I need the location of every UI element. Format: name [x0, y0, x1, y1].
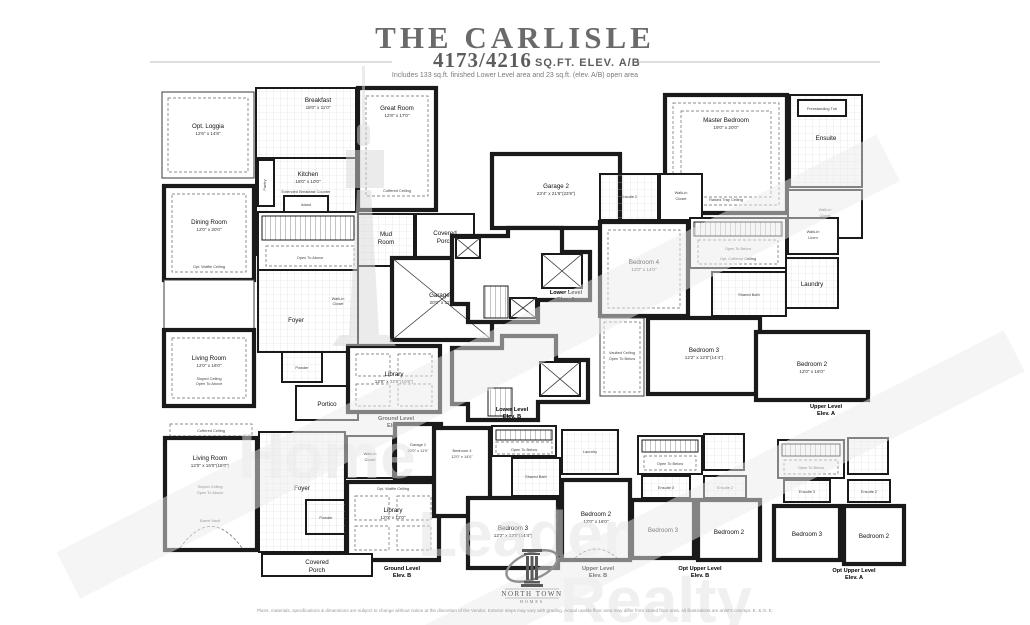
dims-bed2-a: 12'0" x 16'0" — [799, 369, 825, 374]
label-bed4: Bedroom 4 — [629, 259, 660, 266]
label-powder-a: Powder — [295, 365, 309, 370]
floorplan-canvas: THE CARLISLE 4173/4216 SQ.FT. ELEV. A/B … — [0, 0, 1030, 625]
dims-bed3-b: 12'2" x 12'0"(14'4") — [494, 533, 533, 538]
label-bed3-a: Bedroom 3 — [689, 347, 720, 354]
dims-opt-loggia: 12'6" x 14'8" — [195, 131, 221, 136]
label-wic-b-1: Walk-in — [364, 451, 377, 456]
note-sloped-2: Open To Above — [197, 490, 224, 495]
logo-sub: HOMES — [520, 599, 544, 604]
plan-opt-upper-level-b: Open To Below Ensuite 3 Ensuite 2 Bedroo… — [632, 434, 760, 579]
plan-label-opt-b-2: Elev. B — [691, 573, 709, 579]
label-laundry-b: Laundry — [583, 449, 597, 454]
label-island: Island — [301, 202, 311, 207]
bath-opt-b — [704, 434, 744, 470]
note-waffle-ceiling: Opt. Waffle Ceiling — [193, 264, 225, 269]
label-tub: Freestanding Tub — [807, 106, 837, 111]
label-ensuite2-a: Ensuite 2 — [861, 489, 877, 494]
plan-label-upper-a-1: Upper Level — [810, 404, 842, 410]
label-bed4-b: Bedroom 4 — [452, 448, 472, 453]
label-ensuite3-a: Ensuite 3 — [799, 489, 815, 494]
label-wic-master-1: Walk-in — [819, 207, 832, 212]
plan-label-upper-a-2: Elev. A — [817, 411, 835, 417]
label-living-b: Living Room — [193, 455, 227, 462]
hall — [164, 280, 254, 330]
note-living-a-2: Open To Above — [196, 381, 223, 386]
plan-label-ground-b-1: Ground Level — [384, 566, 420, 572]
logo-brand: NORTH TOWN — [501, 590, 562, 598]
label-powder-b: Powder — [319, 515, 333, 520]
label-wil-2: Linen — [808, 235, 818, 240]
label-bed2-a: Bedroom 2 — [797, 361, 828, 368]
plan-label-upper-b-2: Elev. B — [589, 573, 607, 579]
sqft-suffix: SQ.FT. ELEV. A/B — [535, 57, 641, 69]
label-open-below-opt-a: Open To Below — [798, 465, 825, 470]
plan-opt-upper-level-a: Open To Below Ensuite 3 Ensuite 2 Bedroo… — [774, 438, 904, 581]
sqft-note: Includes 133 sq.ft. finished Lower Level… — [392, 72, 638, 79]
room-living-a — [164, 330, 254, 406]
plan-label-opt-b-1: Opt Upper Level — [678, 566, 722, 572]
label-ensuite3-b: Ensuite 3 — [658, 485, 674, 490]
floorplan-sheet: THE CARLISLE 4173/4216 SQ.FT. ELEV. A/B … — [0, 0, 1030, 625]
label-open-below-opt-b: Open To Below — [657, 461, 684, 466]
label-dining: Dining Room — [191, 219, 227, 226]
label-laundry-a: Laundry — [801, 281, 824, 288]
label-pantry: Pantry — [262, 179, 267, 190]
note-sloped-1: Sloped Ceiling — [197, 484, 222, 489]
plan-upper-level-a: Master Bedroom 19'0" x 20'0" Raised Tray… — [600, 95, 868, 417]
plan-lower-level-a: Lower Level Elev. A — [452, 228, 590, 322]
dims-garage1-b: 20'0" x 11'0" — [407, 448, 429, 453]
plan-label-opt-a-2: Elev. A — [845, 575, 863, 581]
label-porch-b-2: Porch — [309, 567, 326, 574]
label-great-room: Great Room — [380, 105, 414, 112]
dims-bed4: 12'0" x 14'0" — [631, 267, 657, 272]
header: THE CARLISLE 4173/4216 SQ.FT. ELEV. A/B … — [150, 20, 880, 79]
note-coffered-b: Coffered Ceiling — [197, 428, 225, 433]
label-mud-1: Mud — [380, 231, 393, 238]
dims-dining: 12'0" x 20'0" — [196, 227, 222, 232]
plan-label-opt-a-1: Opt Upper Level — [832, 568, 876, 574]
label-foyer-a: Foyer — [288, 317, 304, 324]
label-bed2-opt-b: Bedroom 2 — [714, 529, 745, 536]
plan-label-lower-a-1: Lower Level — [550, 290, 583, 296]
note-coffered-ceiling: Coffered Ceiling — [383, 188, 411, 193]
label-garage1-b: Garage 1 — [410, 442, 426, 447]
label-open-below-a: Open To Below — [725, 246, 752, 251]
label-mud-2: Room — [378, 239, 395, 246]
label-ensuite2-b: Ensuite 2 — [717, 485, 733, 490]
note-breakfast-counter: Extended Breakfast Counter — [282, 189, 332, 194]
stair-treads-opt-b — [642, 440, 698, 452]
dims-living-a: 12'0" x 16'0" — [196, 363, 222, 368]
plan-label-upper-b-1: Upper Level — [582, 566, 614, 572]
label-shared-bath-b: Shared Bath — [525, 474, 547, 479]
plan-label-ground-b-2: Elev. B — [393, 573, 411, 579]
dims-kitchen: 18'0" x 10'0" — [295, 179, 321, 184]
label-porch-b-1: Covered — [305, 559, 329, 566]
label-ensuite: Ensuite — [816, 135, 837, 142]
label-living-a: Living Room — [192, 355, 226, 362]
label-bed2-opt-a: Bedroom 2 — [859, 533, 890, 540]
disclaimer-text: Plans, materials, specifications & dimen… — [257, 608, 773, 613]
label-wic-bed4-2: Closet — [675, 196, 687, 201]
label-master: Master Bedroom — [703, 117, 749, 124]
plan-label-lower-b-2: Elev. B — [503, 414, 521, 420]
note-vaulted-2: Open To Below — [609, 356, 636, 361]
stair-treads-upper-b — [496, 430, 552, 440]
plan-lower-level-b: Lower Level Elev. B — [452, 336, 588, 420]
plan-label-ground-a-1: Ground Level — [378, 416, 414, 422]
note-vaulted-1: Vaulted Ceiling — [609, 350, 635, 355]
sqft-value: 4173/4216 — [433, 48, 532, 72]
dims-library-b: 12'0" x 12'0" — [380, 515, 406, 520]
dims-bed2-b: 12'0" x 16'0" — [583, 519, 609, 524]
label-open-to-above: Open To Above — [297, 255, 324, 260]
lower-b-unexcavated — [540, 362, 580, 396]
dims-great-room: 12'8" x 17'0" — [384, 113, 410, 118]
label-breakfast: Breakfast — [305, 97, 331, 104]
label-furniture-niche: Furniture Niche — [554, 507, 559, 534]
label-library-b: Library — [384, 507, 404, 514]
plan-ground-level-b: Coffered Ceiling Living Room 12'0" x 16'… — [165, 424, 441, 579]
bath-opt-a — [848, 438, 888, 474]
note-waffle-library-b: Opt. Waffle Ceiling — [377, 486, 409, 491]
label-library-a: Library — [385, 371, 405, 378]
room-library-b — [347, 482, 439, 560]
label-garage2: Garage 2 — [543, 183, 569, 190]
label-wic-b-2: Closet — [364, 457, 376, 462]
label-wil-1: Walk-in — [807, 229, 820, 234]
dims-breakfast: 18'0" x 11'0" — [306, 105, 331, 110]
label-bed3-opt-b: Bedroom 3 — [648, 527, 679, 534]
dims-bed4-b: 12'0" x 14'0" — [451, 454, 473, 459]
label-foyer-b: Foyer — [294, 485, 310, 492]
label-bed3-opt-a: Bedroom 3 — [792, 531, 823, 538]
stair-treads-upper-a — [694, 222, 782, 236]
note-opt-coffered: Opt. Coffered Ceiling — [720, 256, 756, 261]
label-wic-a-2: Closet — [332, 301, 344, 306]
label-wic-bed4-1: Walk-in — [675, 190, 688, 195]
dims-library-a: 12'0" x 12'8"(10'8") — [375, 379, 414, 384]
note-barrel-vault: Barrel Vault — [200, 518, 221, 523]
note-raised-tray: Raised Tray Ceiling — [709, 197, 743, 202]
room-foyer-a — [258, 270, 358, 352]
label-wic-master-2: Closet — [819, 213, 831, 218]
label-opt-loggia: Opt. Loggia — [192, 123, 225, 130]
dims-master: 19'0" x 20'0" — [713, 125, 739, 130]
label-bed3-b: Bedroom 3 — [498, 525, 529, 532]
lower-a-stairs — [484, 286, 508, 318]
label-shared-bath-a: Shared Bath — [738, 292, 760, 297]
plan-label-lower-b-1: Lower Level — [496, 407, 529, 413]
label-ensuite2: Ensuite 2 — [621, 194, 637, 199]
dims-bed3-a: 12'2" x 12'0"(14'4") — [685, 355, 724, 360]
label-bed2-b: Bedroom 2 — [581, 511, 612, 518]
dims-living-b: 12'0" x 16'0"(18'0") — [191, 463, 230, 468]
label-open-below-b: Open To Below — [511, 447, 538, 452]
label-portico: Portico — [317, 401, 337, 408]
dims-garage2: 23'4" x 21'6"(23'6") — [537, 191, 576, 196]
plan-label-lower-a-2: Elev. A — [557, 297, 575, 303]
label-kitchen: Kitchen — [298, 171, 319, 178]
stair-treads — [262, 216, 354, 240]
stair-treads-opt-a — [782, 444, 840, 456]
